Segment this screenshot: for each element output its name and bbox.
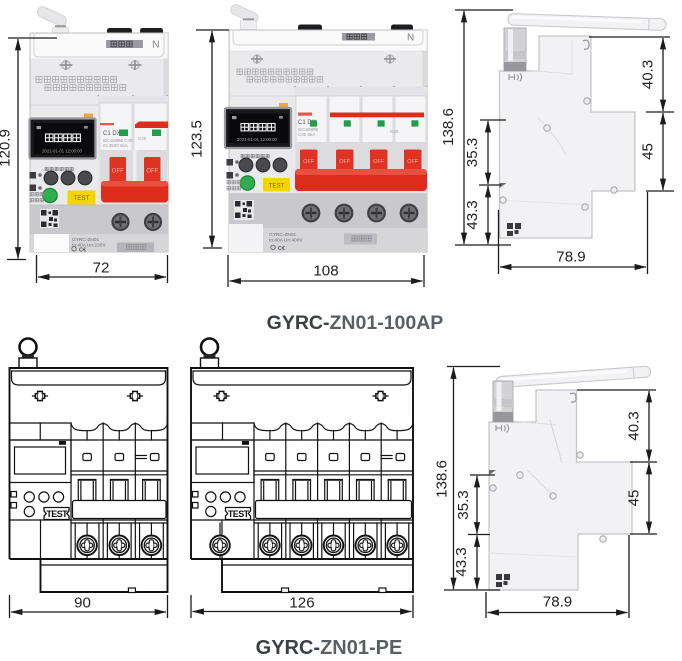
svg-text:TEST: TEST [46,509,68,519]
svg-text:OFF: OFF [373,159,385,165]
svg-text:2021-01-01 12:00:00: 2021-01-01 12:00:00 [42,149,83,154]
svg-text:In:40A Un:230V: In:40A Un:230V [72,243,106,249]
svg-text:120.9: 120.9 [0,129,14,167]
svg-text:72: 72 [93,260,110,277]
svg-text:35.3: 35.3 [455,490,472,519]
svg-text:45: 45 [640,143,657,160]
svg-text:OFF: OFF [146,169,158,175]
svg-text:43.3: 43.3 [464,200,481,229]
svg-text:GYRC-ZN01: GYRC-ZN01 [72,237,100,243]
svg-text:GYRC-ZN01: GYRC-ZN01 [269,232,297,238]
svg-text:C40 6kA: C40 6kA [298,132,315,137]
svg-text:TEST: TEST [74,195,90,202]
svg-text:78.9: 78.9 [556,249,585,266]
svg-text:GYRC-ZN01-100AP: GYRC-ZN01-100AP [267,312,444,334]
svg-text:IN 4500 6kA: IN 4500 6kA [103,143,128,148]
svg-text:123.5: 123.5 [189,120,206,158]
svg-text:40.3: 40.3 [640,60,657,89]
svg-text:45: 45 [626,490,643,507]
svg-text:2021-01-01 12:00:00: 2021-01-01 12:00:00 [237,137,278,142]
svg-text:138.6: 138.6 [440,108,457,146]
svg-text:GYRC-ZN01-PE: GYRC-ZN01-PE [256,637,403,659]
svg-text:OFF: OFF [407,159,419,165]
svg-text:40.3: 40.3 [626,411,643,440]
svg-text:78.9: 78.9 [543,594,572,611]
svg-text:C40: C40 [138,136,147,141]
svg-text:35.3: 35.3 [464,138,481,167]
svg-text:N: N [407,33,414,44]
svg-text:OFF: OFF [339,159,351,165]
svg-text:90: 90 [74,595,91,612]
svg-text:126: 126 [289,595,314,612]
svg-text:C1 DX: C1 DX [103,131,121,137]
svg-text:C€: C€ [79,248,86,254]
svg-text:In:40A Un:400V: In:40A Un:400V [269,238,303,244]
svg-text:43.3: 43.3 [453,547,470,576]
svg-text:TEST: TEST [228,509,250,519]
svg-text:138.6: 138.6 [434,460,451,498]
svg-text:TEST: TEST [269,183,285,190]
svg-text:C€: C€ [278,246,285,252]
svg-text:C40: C40 [390,129,399,134]
svg-text:OFF: OFF [112,169,124,175]
svg-text:108: 108 [313,263,338,280]
svg-text:N: N [152,39,160,51]
svg-text:OFF: OFF [303,159,315,165]
